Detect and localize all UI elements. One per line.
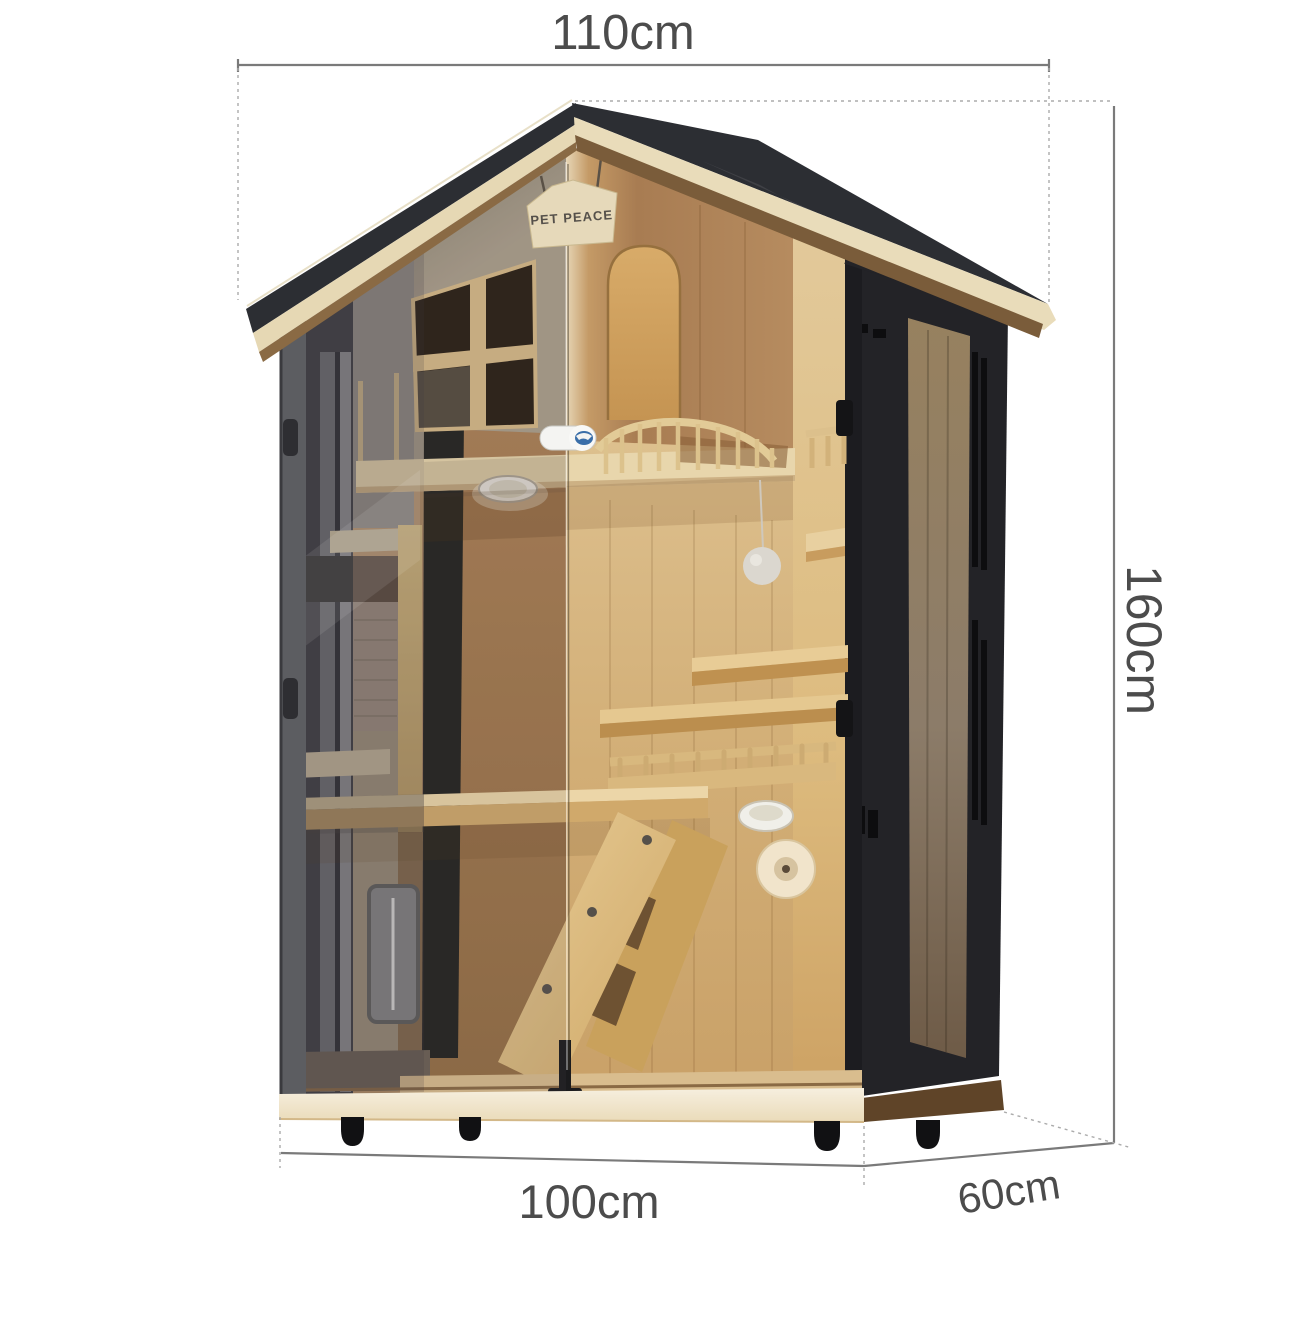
svg-text:100cm: 100cm <box>518 1175 659 1228</box>
svg-text:110cm: 110cm <box>551 6 694 60</box>
svg-text:160cm: 160cm <box>1116 565 1172 715</box>
svg-text:60cm: 60cm <box>954 1160 1063 1222</box>
